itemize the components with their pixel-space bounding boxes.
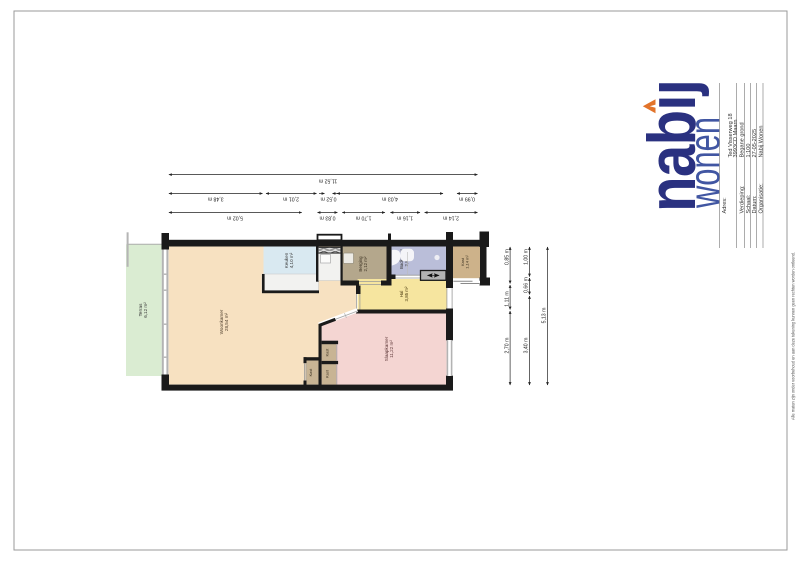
svg-text:0,85 m: 0,85 m [504, 249, 510, 265]
svg-text:4,03 m: 4,03 m [382, 195, 398, 201]
svg-text:4,10 m²: 4,10 m² [289, 252, 294, 268]
svg-text:Organisatie:: Organisatie: [759, 183, 765, 214]
svg-text:2,14 m: 2,14 m [443, 214, 459, 220]
svg-text:3,48 m: 3,48 m [208, 195, 224, 201]
svg-text:wonen: wonen [681, 117, 730, 209]
svg-text:Nabij Wonen: Nabij Wonen [759, 126, 765, 158]
svg-text:6,12 m²: 6,12 m² [143, 302, 148, 318]
svg-text:2,12 m²: 2,12 m² [363, 256, 368, 271]
svg-text:0,83 m: 0,83 m [320, 214, 336, 220]
svg-text:1,11 m: 1,11 m [504, 291, 510, 306]
svg-text:0,52 m: 0,52 m [321, 195, 337, 201]
svg-text:0,99 m: 0,99 m [459, 195, 475, 201]
svg-text:Adres:: Adres: [722, 197, 728, 214]
svg-text:2,01 m: 2,01 m [283, 195, 299, 201]
svg-text:Begane grond: Begane grond [740, 122, 746, 157]
svg-text:1,16 m: 1,16 m [397, 214, 413, 220]
svg-text:Kast: Kast [309, 368, 313, 377]
svg-text:1,00 m: 1,00 m [524, 249, 530, 265]
svg-text:27-05-2025: 27-05-2025 [752, 129, 758, 158]
svg-text:Kast: Kast [326, 348, 330, 357]
svg-text:3,85 m²: 3,85 m² [404, 286, 409, 301]
svg-text:5,02 m: 5,02 m [227, 214, 243, 220]
svg-text:1,70 m: 1,70 m [356, 214, 372, 220]
svg-text:5,13 m: 5,13 m [542, 308, 548, 324]
svg-text:Kast: Kast [326, 369, 330, 378]
svg-text:28,54 m²: 28,54 m² [224, 312, 229, 331]
svg-text:11,22 m²: 11,22 m² [389, 340, 394, 358]
svg-text:11,52 m: 11,52 m [319, 178, 337, 184]
svg-text:Datum:: Datum: [752, 195, 758, 213]
svg-text:Verdieping:: Verdieping: [740, 185, 746, 213]
svg-text:3,40 m: 3,40 m [524, 338, 530, 354]
svg-text:1,14 m²: 1,14 m² [465, 255, 470, 269]
svg-text:2,70 m: 2,70 m [504, 338, 510, 354]
svg-text:3993CD Maarn: 3993CD Maarn [733, 120, 739, 158]
svg-text:0,66 m: 0,66 m [524, 277, 530, 293]
svg-text:Alle maten zijn onder voorbeho: Alle maten zijn onder voorbehoud en aan … [790, 252, 796, 420]
